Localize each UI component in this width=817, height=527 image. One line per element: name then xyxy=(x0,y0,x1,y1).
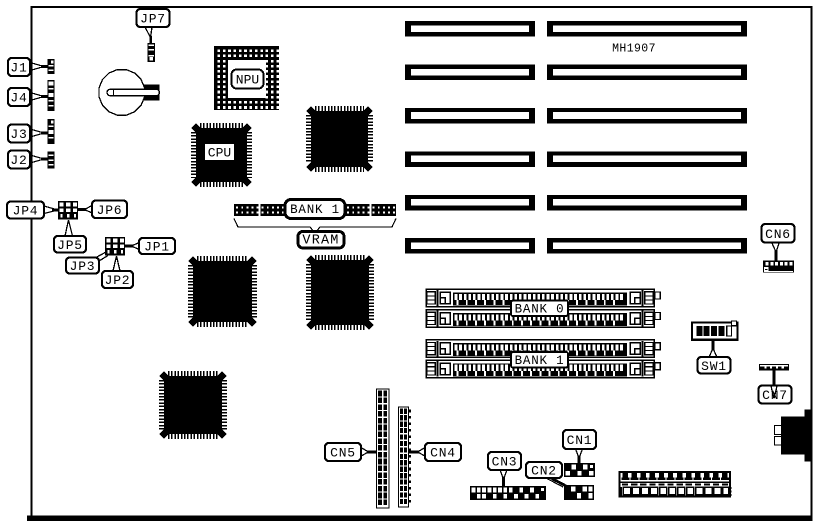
svg-text:JP2: JP2 xyxy=(105,273,131,288)
svg-text:J2: J2 xyxy=(10,153,27,168)
svg-text:CN2: CN2 xyxy=(531,464,557,479)
svg-text:SW1: SW1 xyxy=(701,359,727,374)
svg-text:CN6: CN6 xyxy=(765,227,791,242)
svg-text:NPU: NPU xyxy=(236,73,259,88)
svg-text:CN5: CN5 xyxy=(330,446,356,461)
svg-text:JP4: JP4 xyxy=(13,204,39,219)
svg-text:JP5: JP5 xyxy=(57,238,83,253)
svg-text:JP3: JP3 xyxy=(70,259,96,274)
svg-text:J1: J1 xyxy=(10,61,27,76)
svg-text:BANK 1: BANK 1 xyxy=(290,203,340,217)
svg-text:CPU: CPU xyxy=(208,146,231,161)
svg-text:JP6: JP6 xyxy=(97,203,123,218)
svg-text:CN1: CN1 xyxy=(567,433,593,448)
svg-text:BANK 1: BANK 1 xyxy=(515,354,565,368)
svg-text:J4: J4 xyxy=(10,91,27,106)
svg-text:JP7: JP7 xyxy=(140,12,166,27)
svg-text:CN4: CN4 xyxy=(430,446,456,461)
svg-text:MH1907: MH1907 xyxy=(612,42,656,55)
svg-text:CN3: CN3 xyxy=(492,455,518,470)
svg-text:J3: J3 xyxy=(10,127,27,142)
svg-text:JP1: JP1 xyxy=(144,240,170,255)
svg-text:VRAM: VRAM xyxy=(302,233,339,248)
svg-text:BANK 0: BANK 0 xyxy=(515,302,565,316)
